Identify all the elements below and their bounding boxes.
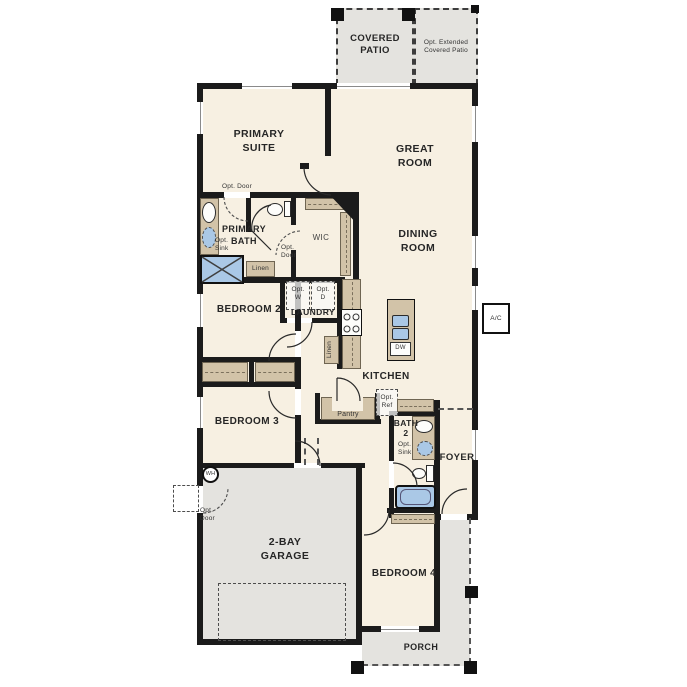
porch-post: [351, 661, 364, 674]
window: [381, 626, 419, 632]
window: [242, 83, 292, 89]
label-opt-washer: Opt. W: [287, 286, 309, 302]
toilet-tank: [284, 201, 291, 217]
label-wic: WIC: [303, 233, 339, 243]
label-opt-door-garage: Opt. Door: [200, 507, 224, 523]
room-porch-fill: [438, 518, 470, 629]
label-dishwasher: DW: [390, 345, 411, 352]
window: [197, 102, 203, 134]
label-covered-patio: COVERED PATIO: [338, 33, 412, 58]
porch-post: [464, 661, 477, 674]
label-opt-sink-primary: Opt. Sink: [215, 237, 239, 253]
ceiling-break: [304, 438, 306, 465]
label-kitchen: KITCHEN: [352, 370, 420, 383]
window: [472, 236, 478, 268]
closet-shelf: [305, 198, 351, 210]
label-opt-ref: Opt. Ref: [377, 394, 397, 410]
label-foyer: FOYER: [437, 452, 477, 464]
floor-plan: COVERED PATIO Opt. Extended Covered Pati…: [0, 0, 687, 687]
optional-door-swing: [173, 485, 199, 512]
label-linen-bath: Linen: [246, 265, 275, 273]
label-bath2: BATH 2: [393, 419, 419, 439]
porch-edge: [362, 664, 470, 666]
bathtub-basin: [400, 489, 431, 505]
wall: [197, 463, 365, 468]
label-bedroom2: BEDROOM 2: [207, 303, 291, 316]
wall: [291, 192, 296, 225]
label-primary-suite: PRIMARY SUITE: [213, 128, 305, 155]
sliding-door: [337, 83, 410, 89]
toilet: [412, 468, 426, 479]
label-great-room: GREAT ROOM: [383, 143, 447, 170]
toilet: [267, 203, 283, 216]
range: [341, 309, 362, 336]
porch-post: [465, 586, 478, 598]
label-opt-extended-patio: Opt. Extended Covered Patio: [416, 39, 476, 55]
patio-corner-mark: [471, 5, 479, 13]
room-foyer-fill: [438, 468, 476, 518]
sink: [202, 202, 216, 223]
wall: [249, 357, 254, 387]
closet-shelf: [202, 362, 248, 382]
wall: [300, 163, 309, 169]
window: [197, 397, 203, 428]
label-bedroom3: BEDROOM 3: [205, 415, 289, 428]
label-pantry: Pantry: [327, 411, 369, 419]
label-dining-room: DINING ROOM: [386, 228, 450, 255]
label-linen-hall: Linen: [326, 337, 338, 363]
closet-shelf: [391, 514, 435, 524]
window: [197, 294, 203, 327]
kitchen-counter: [397, 399, 434, 412]
label-opt-sink-bath2: Opt. Sink: [398, 441, 420, 457]
closet-shelf: [340, 212, 351, 276]
garage-door: [218, 583, 346, 641]
wall: [356, 463, 362, 645]
wall: [353, 192, 359, 283]
label-ac-unit: A/C: [482, 315, 510, 323]
ceiling-break: [317, 438, 319, 465]
shower: [200, 255, 244, 284]
label-opt-dryer: Opt. D: [312, 286, 334, 302]
toilet-tank: [426, 465, 434, 482]
label-opt-door-wic: Opt. Door: [281, 244, 303, 260]
island-sink: [392, 328, 409, 340]
patio-post: [402, 8, 415, 21]
island-sink: [392, 315, 409, 327]
label-porch: PORCH: [397, 642, 445, 654]
closet-shelf: [255, 362, 295, 382]
window: [472, 286, 478, 310]
patio-post: [331, 8, 344, 21]
wall: [325, 83, 331, 156]
label-opt-door-suite: Opt. Door: [216, 183, 258, 191]
window: [472, 106, 478, 142]
label-water-heater: WH: [202, 471, 219, 478]
ceiling-break: [438, 408, 473, 410]
label-bedroom4: BEDROOM 4: [368, 567, 440, 580]
label-garage: 2-BAY GARAGE: [243, 536, 327, 563]
label-laundry: LAUNDRY: [284, 307, 342, 318]
pantry-floor: [332, 397, 363, 411]
